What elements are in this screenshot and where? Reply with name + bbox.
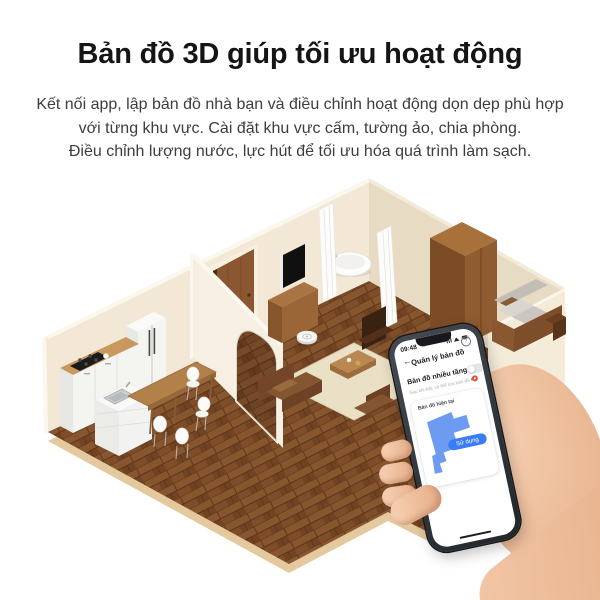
mug (103, 353, 108, 358)
multi-floor-toggle[interactable] (466, 362, 484, 374)
status-time: 09:48 (400, 343, 418, 353)
home-indicator (459, 530, 491, 539)
robot-vacuum (296, 331, 318, 347)
map-card[interactable]: Bản đồ hiện tại Sử dụng (410, 387, 501, 488)
marketing-banner: Bản đồ 3D giúp tối ưu hoạt động Kết nối … (0, 0, 600, 600)
wifi-icon (453, 337, 460, 342)
